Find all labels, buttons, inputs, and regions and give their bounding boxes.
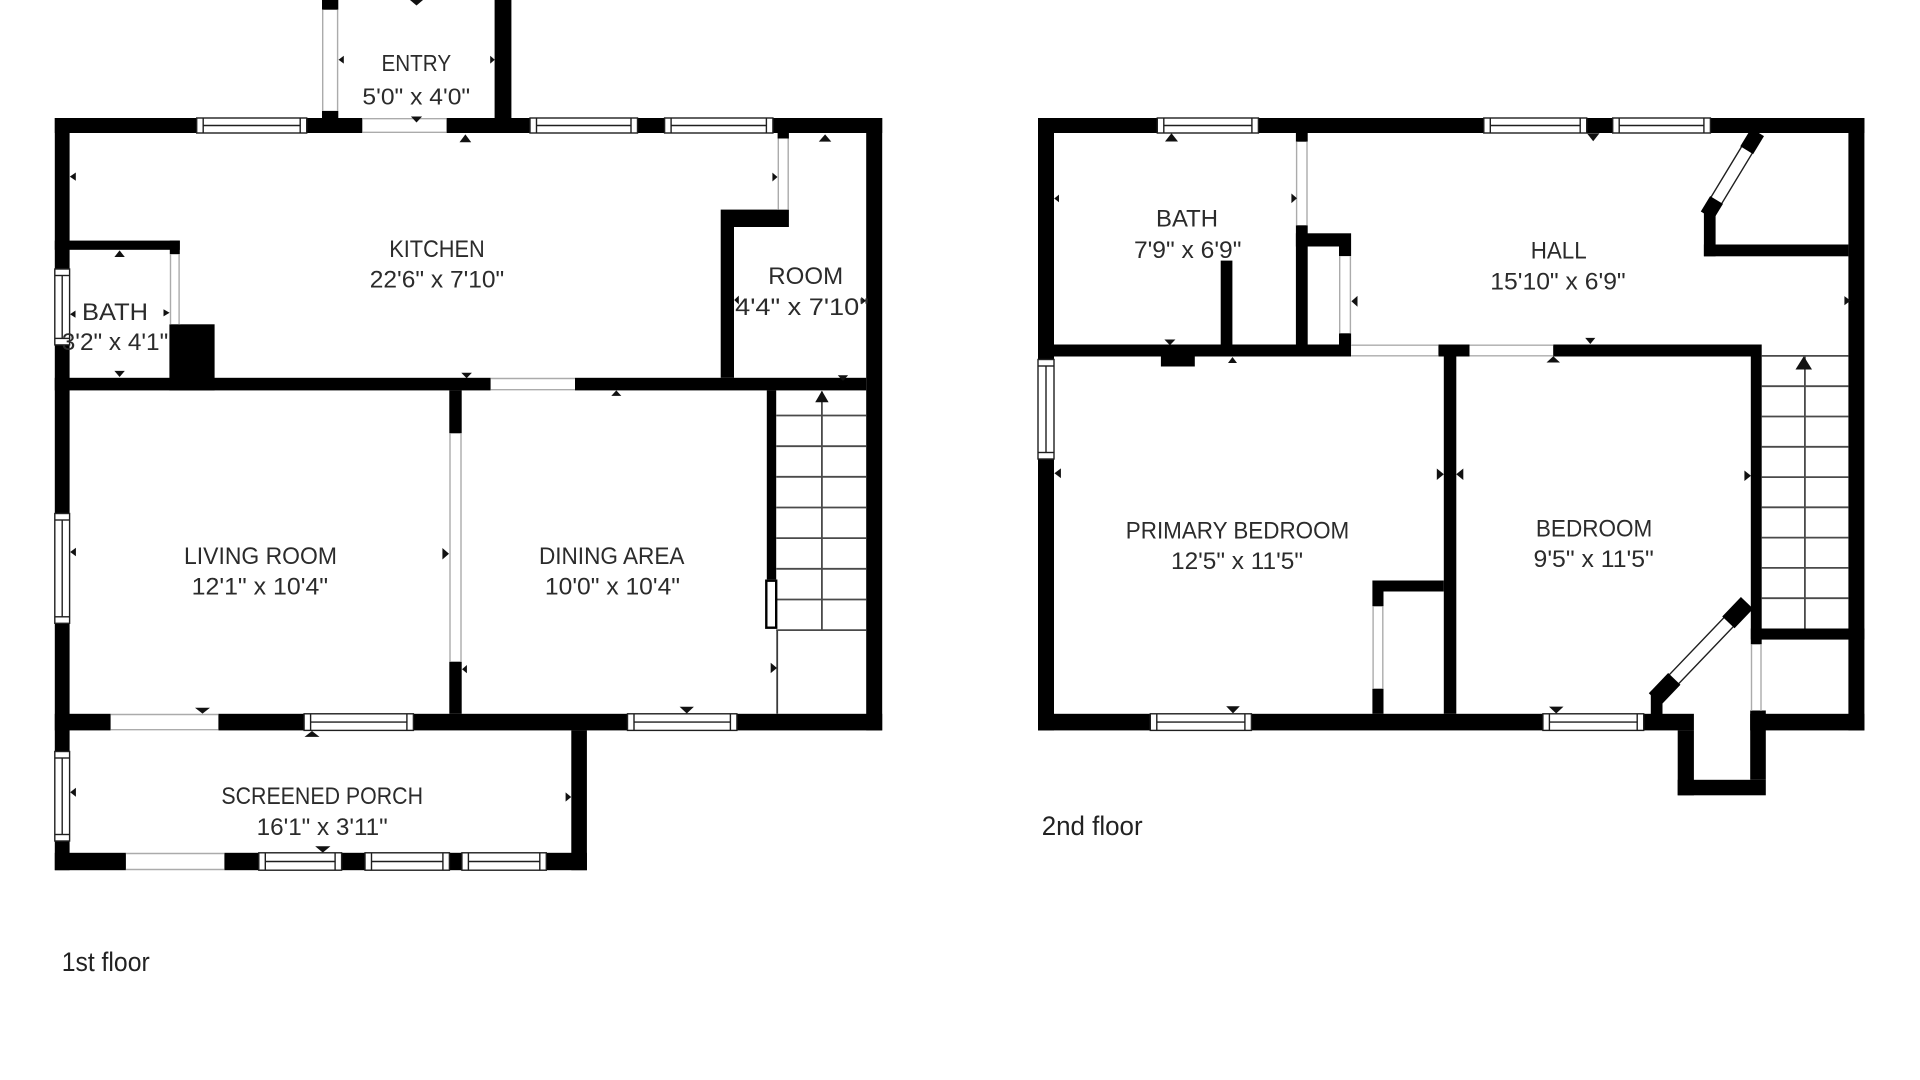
svg-text:12'5" x 11'5": 12'5" x 11'5"	[1171, 548, 1303, 575]
svg-text:15'10" x 6'9": 15'10" x 6'9"	[1490, 269, 1625, 296]
svg-text:1st floor: 1st floor	[62, 947, 150, 977]
svg-text:2nd floor: 2nd floor	[1042, 811, 1143, 841]
svg-text:12'1" x 10'4": 12'1" x 10'4"	[192, 574, 329, 601]
svg-text:9'5" x 11'5": 9'5" x 11'5"	[1534, 546, 1654, 573]
svg-text:BATH: BATH	[1156, 206, 1218, 233]
svg-text:5'0" x 4'0": 5'0" x 4'0"	[362, 83, 470, 109]
svg-text:BATH: BATH	[82, 299, 148, 326]
svg-text:HALL: HALL	[1531, 238, 1587, 265]
svg-text:PRIMARY BEDROOM: PRIMARY BEDROOM	[1126, 518, 1349, 545]
svg-text:22'6" x 7'10": 22'6" x 7'10"	[370, 267, 505, 294]
svg-text:ROOM: ROOM	[768, 263, 843, 290]
svg-text:LIVING ROOM: LIVING ROOM	[184, 543, 337, 570]
svg-text:16'1" x 3'11": 16'1" x 3'11"	[257, 814, 388, 841]
svg-text:ENTRY: ENTRY	[382, 50, 452, 76]
svg-text:3'2" x 4'1": 3'2" x 4'1"	[62, 329, 169, 356]
svg-text:4'4" x 7'10": 4'4" x 7'10"	[735, 294, 869, 321]
svg-text:KITCHEN: KITCHEN	[389, 236, 485, 263]
svg-text:7'9" x 6'9": 7'9" x 6'9"	[1134, 237, 1242, 264]
svg-text:SCREENED PORCH: SCREENED PORCH	[221, 783, 423, 810]
svg-text:DINING AREA: DINING AREA	[539, 543, 685, 570]
svg-text:10'0" x 10'4": 10'0" x 10'4"	[545, 574, 680, 601]
svg-text:BEDROOM: BEDROOM	[1536, 516, 1652, 543]
